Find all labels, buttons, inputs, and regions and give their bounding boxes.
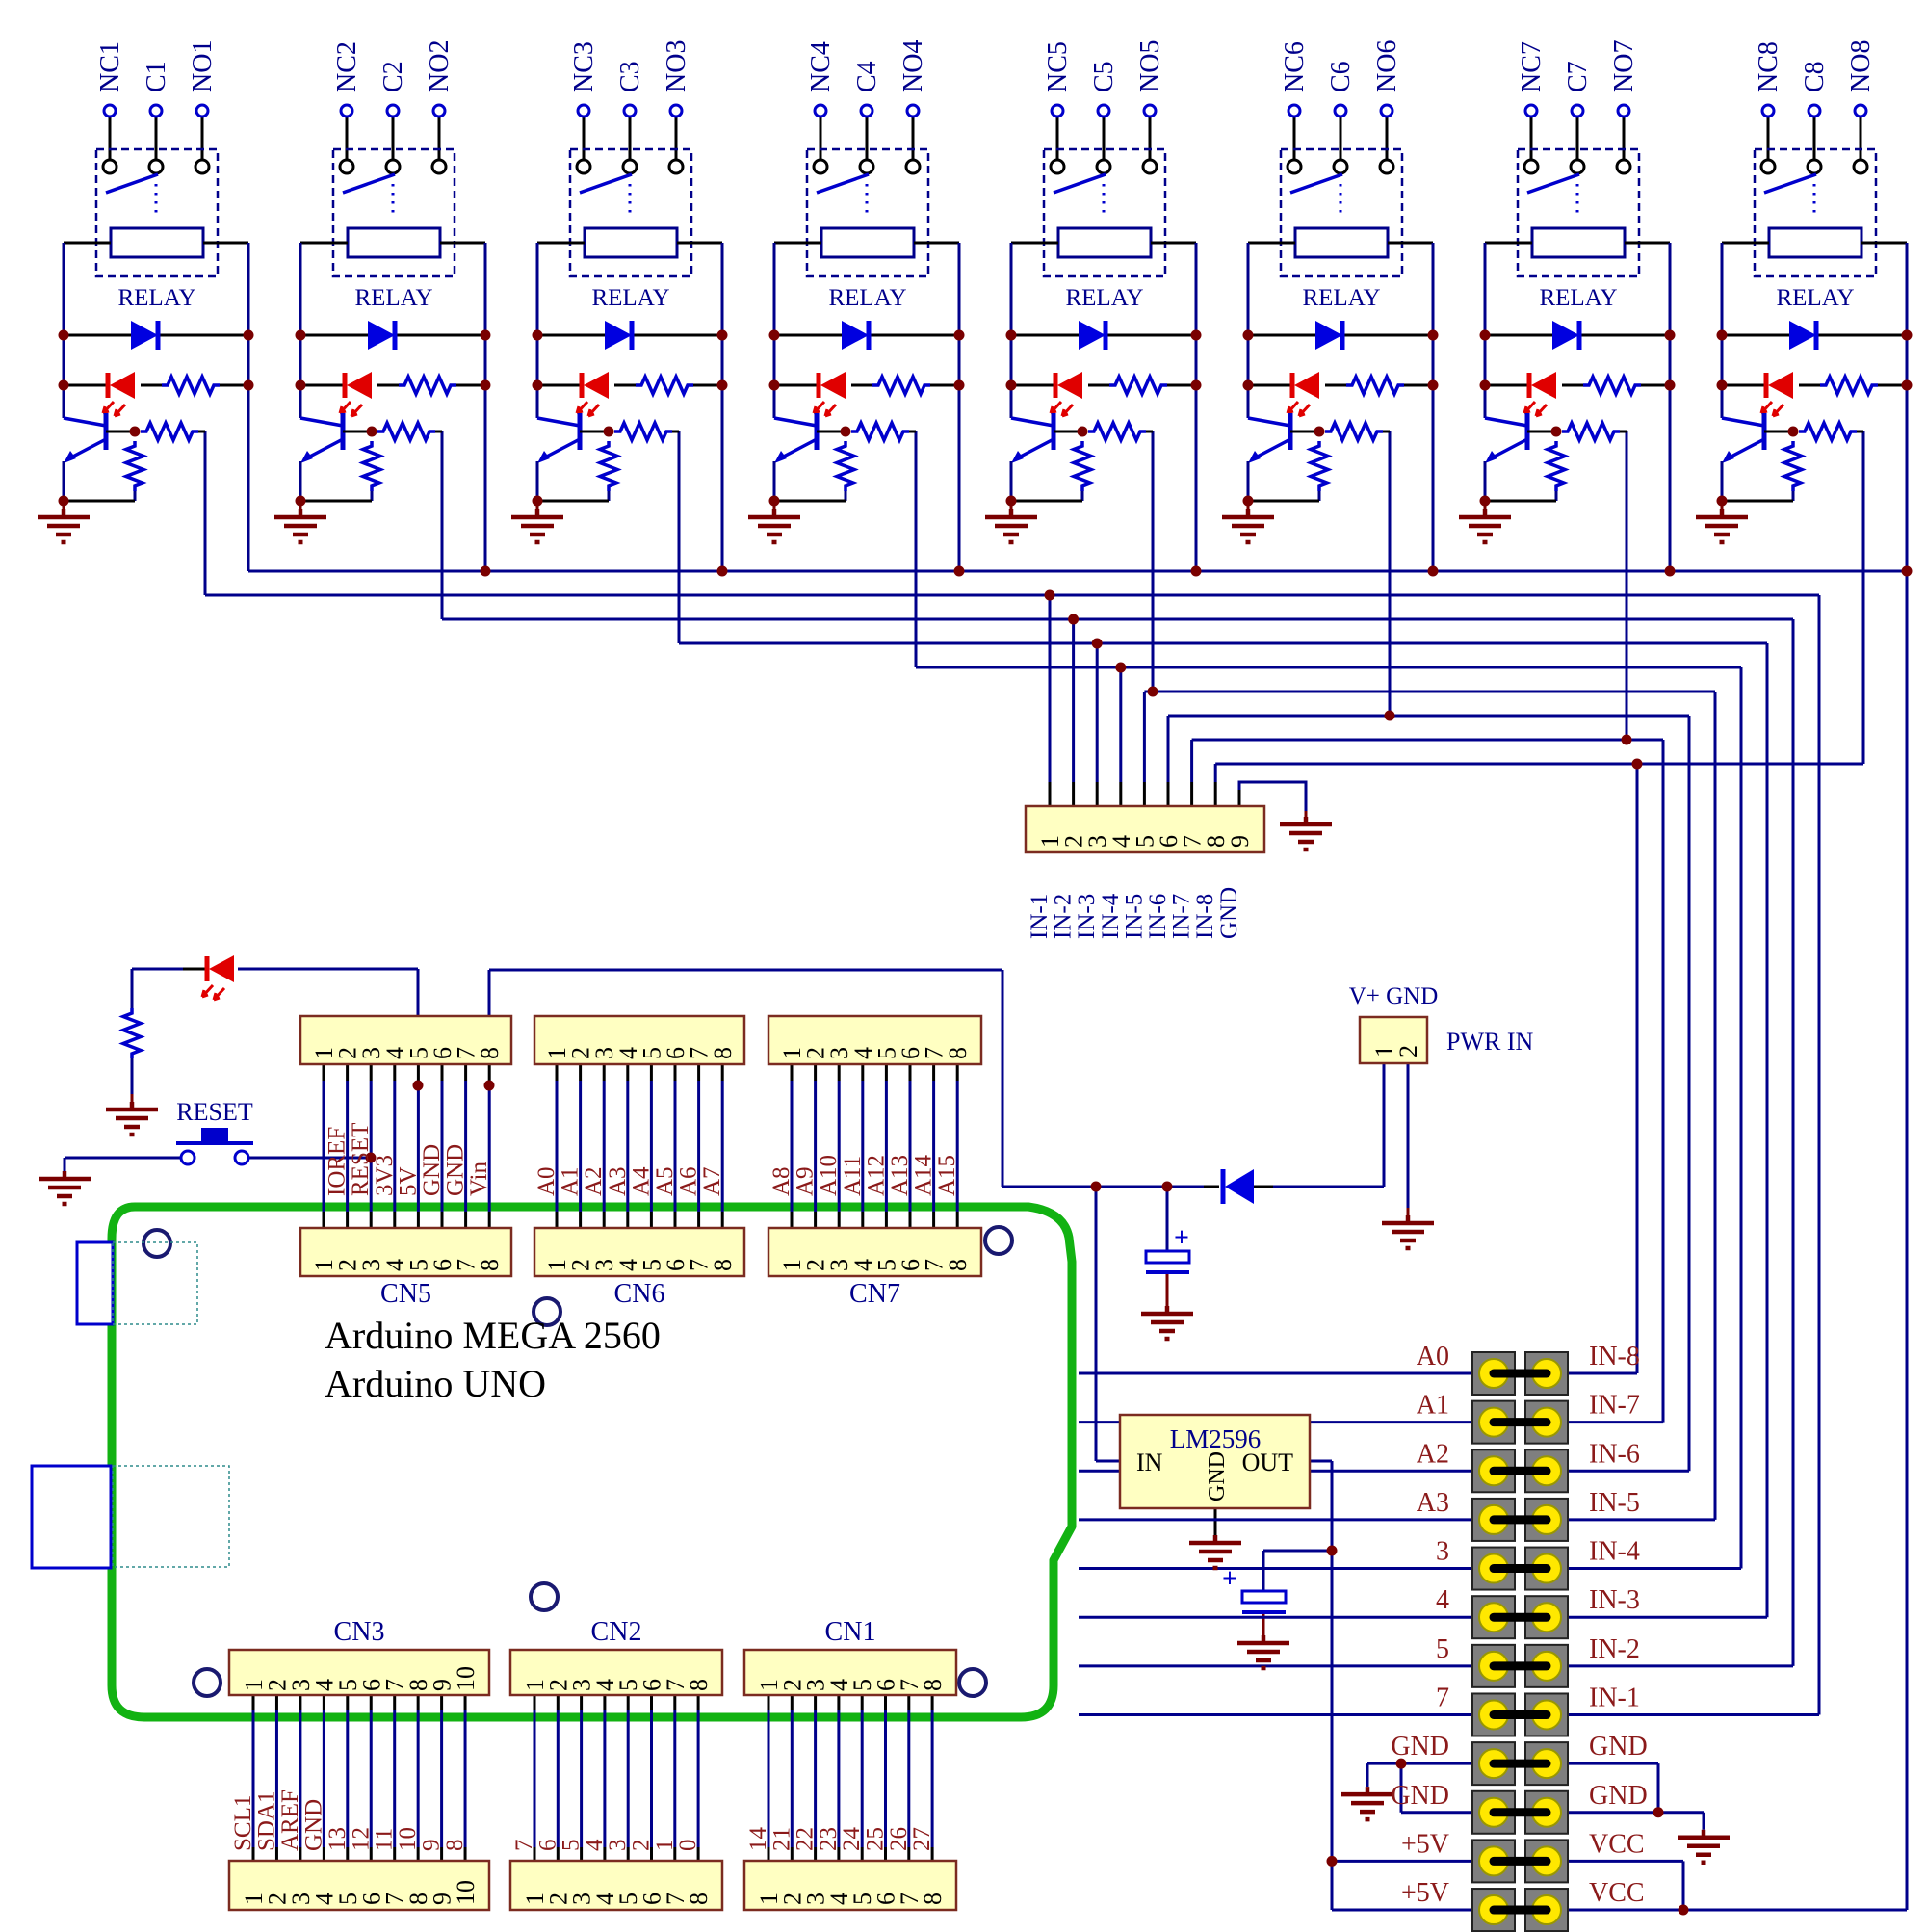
terminal-label-nc: NC8: [1754, 41, 1783, 92]
relay-cell-3: [511, 105, 728, 571]
connector-label: CN3: [334, 1617, 385, 1647]
signal-label: 6: [534, 1840, 560, 1852]
cap-polarity: +: [1222, 1564, 1237, 1594]
jumper-left-label: A3: [1417, 1488, 1449, 1518]
relay-label: RELAY: [1065, 285, 1143, 311]
pin-number: 8: [919, 1679, 947, 1691]
jumper-left-label: 7: [1436, 1683, 1449, 1712]
junction-dot: [1115, 663, 1126, 673]
junction-dot: [1148, 687, 1158, 697]
ground-icon: [1678, 1830, 1730, 1863]
pin-number: 8: [476, 1047, 504, 1059]
signal-label: GND: [419, 1144, 445, 1196]
signal-label: IN-3: [1074, 894, 1100, 939]
pin-number: 10: [452, 1666, 480, 1691]
junction-dot: [1327, 1546, 1338, 1556]
jumper-left-label: A0: [1417, 1342, 1449, 1371]
reset-label: RESET: [176, 1098, 253, 1126]
relay-cell-8: [1696, 105, 1913, 571]
terminal-label-nc: NC3: [569, 41, 599, 92]
signal-label: A0: [534, 1166, 560, 1196]
signal-label: 26: [886, 1827, 912, 1851]
junction-dot: [1045, 590, 1055, 601]
relay-cell-7: [1459, 105, 1676, 571]
terminal-label-nc: NC2: [332, 41, 362, 92]
jumper-left-label: A2: [1417, 1439, 1449, 1469]
terminal-label-no: NO2: [425, 40, 455, 92]
jumper-right-label: IN-5: [1589, 1488, 1640, 1518]
junction-dot: [1327, 1856, 1338, 1867]
power-jack-outline: [113, 1466, 229, 1567]
signal-label: A9: [793, 1166, 819, 1196]
jumper-left-label: +5V: [1401, 1878, 1449, 1908]
junction-dot: [1068, 614, 1079, 625]
relay-cell-5: [985, 105, 1202, 571]
regulator-pin-out: OUT: [1242, 1449, 1294, 1476]
terminal-label-c: C7: [1563, 61, 1593, 92]
signal-label: 3: [605, 1840, 631, 1852]
junction-dot: [1665, 566, 1676, 577]
signal-label: A8: [768, 1166, 794, 1196]
signal-label: 23: [816, 1827, 842, 1851]
signal-label: IN-1: [1027, 894, 1053, 939]
schematic-canvas: Arduino MEGA 2560Arduino UNONC1C1NO1RELA…: [0, 0, 1926, 1932]
signal-label: 8: [442, 1840, 468, 1852]
jumper-left-label: 5: [1436, 1634, 1449, 1664]
junction-dot: [1622, 735, 1632, 745]
signal-label: IOREF: [325, 1127, 351, 1196]
terminal-label-nc: NC4: [806, 41, 836, 92]
connector-label: CN7: [849, 1279, 900, 1309]
jumper-right-label: IN-2: [1589, 1634, 1640, 1664]
signal-label: 12: [348, 1827, 374, 1851]
signal-label: 9: [419, 1840, 445, 1852]
pin-number: 8: [944, 1047, 972, 1059]
signal-label: GND: [1216, 887, 1242, 939]
signal-label: A15: [934, 1155, 960, 1196]
signal-label: A11: [840, 1156, 866, 1196]
usb-connector-icon: [77, 1242, 113, 1324]
reset-button-cap: [201, 1128, 228, 1143]
pin-number: 8: [709, 1259, 737, 1271]
junction-dot: [1632, 759, 1643, 770]
junction-dot: [1162, 1182, 1173, 1192]
signal-label: AREF: [277, 1789, 303, 1851]
signal-label: Vin: [466, 1162, 492, 1196]
junction-dot: [1428, 566, 1439, 577]
signal-label: 7: [511, 1840, 537, 1852]
ground-icon: [1382, 1215, 1434, 1248]
terminal-label-no: NO8: [1846, 40, 1876, 92]
relay-cell-2: [274, 105, 491, 571]
ground-icon: [1189, 1535, 1241, 1568]
pin-number: 8: [685, 1679, 713, 1691]
relay-label: RELAY: [1302, 285, 1380, 311]
labels-layer: Arduino MEGA 2560Arduino UNONC1C1NO1RELA…: [95, 40, 1876, 1908]
signal-label: 0: [675, 1840, 701, 1852]
junction-dot: [1091, 1182, 1102, 1192]
signal-label: 4: [582, 1839, 608, 1851]
terminal-label-c: C8: [1800, 61, 1830, 92]
signal-label: 25: [863, 1827, 889, 1851]
pin-number: 10: [452, 1880, 480, 1905]
junction-dot: [484, 1081, 495, 1091]
terminal-label-nc: NC5: [1043, 41, 1073, 92]
pin-number: 8: [476, 1259, 504, 1271]
signal-label: A10: [816, 1155, 842, 1196]
signal-label: IN-6: [1145, 894, 1171, 939]
jumper-right-label: VCC: [1589, 1878, 1645, 1908]
reset-terminal: [181, 1151, 195, 1164]
mounting-hole-icon: [143, 1230, 170, 1257]
terminal-label-c: C3: [615, 61, 645, 92]
signal-label: IN-2: [1051, 894, 1077, 939]
terminal-label-c: C2: [378, 61, 408, 92]
jumper-right-label: IN-7: [1589, 1391, 1640, 1421]
terminal-label-no: NO7: [1609, 40, 1639, 92]
jumper-left-label: +5V: [1401, 1829, 1449, 1859]
ground-icon: [106, 1102, 158, 1135]
signal-label: 21: [768, 1827, 794, 1851]
signal-label: RESET: [348, 1123, 374, 1196]
junction-dot: [954, 566, 965, 577]
junction-dot: [481, 566, 491, 577]
diode-icon: [1225, 1169, 1254, 1204]
signal-label: A7: [699, 1166, 725, 1196]
junction-dot: [1092, 639, 1103, 649]
pin-number: 8: [685, 1893, 713, 1905]
jumper-right-label: IN-8: [1589, 1342, 1640, 1371]
jumper-right-label: IN-3: [1589, 1585, 1640, 1615]
signal-label: 5: [559, 1840, 585, 1852]
power-jack-icon: [32, 1466, 111, 1568]
signal-label: 24: [839, 1827, 865, 1852]
regulator-pin-in: IN: [1136, 1449, 1163, 1476]
capacitor-icon: [1242, 1591, 1286, 1603]
relay-cell-6: [1222, 105, 1439, 571]
pwr-in-label: PWR IN: [1446, 1028, 1534, 1056]
terminal-label-no: NO4: [898, 40, 928, 92]
relay-cell-4: [748, 105, 965, 571]
regulator-pin-gnd: GND: [1205, 1451, 1230, 1501]
signal-label: IN-7: [1169, 894, 1195, 939]
signal-label: 10: [395, 1827, 421, 1851]
pin-number: 8: [919, 1893, 947, 1905]
signal-label: 5V: [395, 1166, 421, 1196]
reset-terminal: [235, 1151, 248, 1164]
ground-icon: [1237, 1635, 1289, 1668]
terminal-label-c: C4: [852, 61, 882, 92]
terminal-label-no: NO6: [1372, 40, 1402, 92]
terminal-label-nc: NC1: [95, 41, 125, 92]
jumper-right-label: VCC: [1589, 1829, 1645, 1859]
pin-number: 9: [1226, 835, 1254, 848]
terminal-label-nc: NC6: [1280, 41, 1310, 92]
relay-label: RELAY: [117, 285, 195, 311]
signal-label: SDA1: [253, 1790, 279, 1851]
terminal-label-no: NO3: [662, 40, 691, 92]
ground-icon: [1141, 1306, 1193, 1339]
junction-dot: [413, 1081, 424, 1091]
signal-label: A12: [863, 1155, 889, 1196]
pin-number: 8: [709, 1047, 737, 1059]
signal-label: A2: [581, 1166, 607, 1196]
ground-icon: [39, 1171, 91, 1204]
signal-label: 2: [629, 1840, 655, 1852]
cap-polarity: +: [1174, 1223, 1189, 1253]
signal-label: A4: [628, 1166, 654, 1196]
relay-label: RELAY: [591, 285, 669, 311]
jumper-left-label: GND: [1391, 1781, 1449, 1811]
connector-label: CN1: [825, 1617, 876, 1647]
jumper-right-label: IN-1: [1589, 1683, 1640, 1712]
junction-dot: [1679, 1905, 1689, 1916]
pin-number: 8: [944, 1259, 972, 1271]
signal-label: A5: [652, 1166, 678, 1196]
terminal-label-c: C1: [142, 61, 171, 92]
terminal-label-c: C5: [1089, 61, 1119, 92]
mounting-hole-icon: [959, 1669, 986, 1696]
junction-dot: [1653, 1807, 1664, 1817]
ground-icon: [1280, 817, 1332, 849]
signal-label: A3: [605, 1166, 631, 1196]
signal-label: IN-8: [1192, 894, 1218, 939]
signal-label: SCL1: [230, 1795, 256, 1851]
junction-dot: [717, 566, 728, 577]
jumper-left-label: 3: [1436, 1537, 1449, 1567]
terminal-label-c: C6: [1326, 61, 1356, 92]
signal-label: 11: [372, 1828, 398, 1851]
relay-label: RELAY: [1776, 285, 1854, 311]
relay-label: RELAY: [354, 285, 432, 311]
relay-label: RELAY: [1539, 285, 1617, 311]
signal-label: 22: [793, 1827, 819, 1851]
power-led-icon: [202, 955, 234, 1000]
resistor-icon: [123, 1008, 141, 1058]
jumper-right-label: IN-4: [1589, 1537, 1640, 1567]
jumper-right-label: IN-6: [1589, 1439, 1640, 1469]
terminal-label-no: NO5: [1135, 40, 1165, 92]
connector-label: CN5: [380, 1279, 431, 1309]
signal-label: A1: [558, 1166, 584, 1196]
connector-label: CN2: [591, 1617, 642, 1647]
signal-label: GND: [300, 1799, 326, 1851]
signal-label: GND: [443, 1144, 469, 1196]
junction-dot: [1191, 566, 1202, 577]
signal-label: 1: [652, 1840, 678, 1852]
jumper-right-label: GND: [1589, 1781, 1648, 1811]
signal-label: IN-4: [1098, 893, 1124, 939]
signal-label: A6: [676, 1166, 702, 1196]
pin-number: 2: [1394, 1045, 1422, 1057]
mounting-hole-icon: [985, 1227, 1012, 1254]
jumper-left-label: GND: [1391, 1732, 1449, 1762]
signal-label: 3V3: [372, 1155, 398, 1196]
signal-label: 27: [909, 1827, 935, 1851]
terminal-label-no: NO1: [188, 40, 218, 92]
signal-label: 14: [745, 1827, 771, 1852]
jumper-left-label: A1: [1417, 1391, 1449, 1421]
mounting-hole-icon: [194, 1669, 221, 1696]
signal-label: 13: [325, 1827, 351, 1851]
jumper-right-label: GND: [1589, 1732, 1648, 1762]
schematic-page: Arduino MEGA 2560Arduino UNONC1C1NO1RELA…: [0, 0, 1926, 1932]
junction-dot: [1385, 711, 1395, 721]
board-title: Arduino UNO: [325, 1362, 546, 1405]
pwr-pins-label: V+ GND: [1349, 983, 1439, 1009]
relay-cell-1: [38, 105, 254, 571]
ground-icon: [1341, 1787, 1393, 1819]
signal-label: A13: [887, 1155, 913, 1196]
jumper-left-label: 4: [1436, 1585, 1449, 1615]
junction-dot: [1902, 566, 1913, 577]
connector-label: CN6: [614, 1279, 665, 1309]
arduino-board-layer: [32, 1207, 1072, 1717]
relay-label: RELAY: [828, 285, 906, 311]
signal-label: IN-5: [1121, 894, 1147, 939]
mounting-hole-icon: [531, 1583, 558, 1610]
terminal-label-nc: NC7: [1517, 41, 1547, 92]
signal-label: A14: [911, 1154, 937, 1196]
board-title: Arduino MEGA 2560: [325, 1314, 661, 1357]
